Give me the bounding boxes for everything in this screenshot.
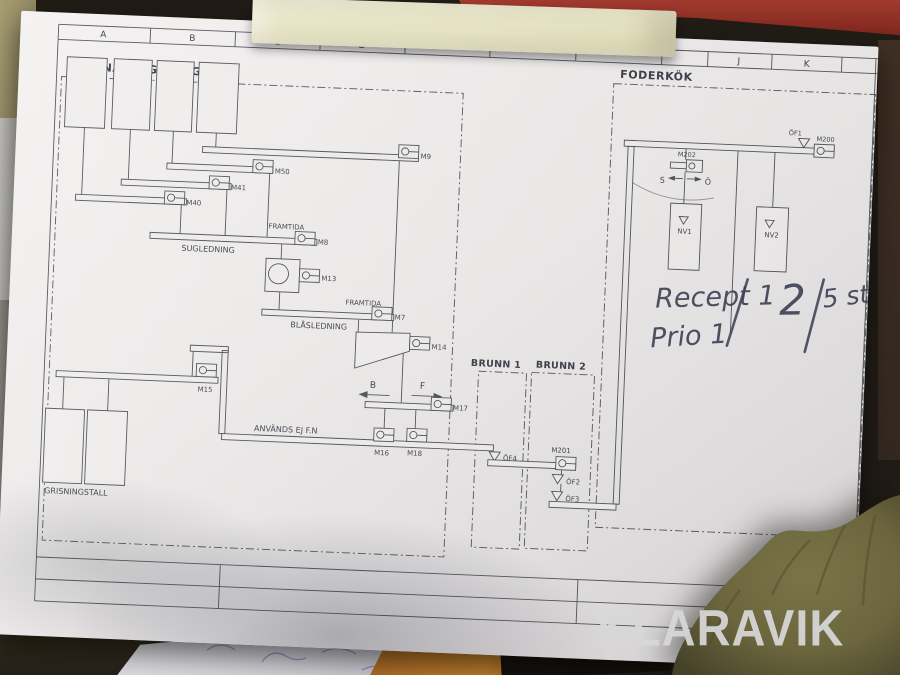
reversible-conveyor: B F M17: [358, 379, 469, 413]
hopper-m14: M14: [355, 331, 448, 372]
label-nv2: NV2: [764, 231, 779, 240]
background-edge: [878, 40, 900, 460]
label-grisningstall: GRISNINGSTALL: [44, 486, 108, 498]
silo-1: [64, 57, 107, 129]
valve-of1-icon: [798, 138, 809, 147]
motor-m41-icon: [209, 176, 230, 190]
grid-letter: K: [804, 60, 811, 70]
section-title-foderkok: FODERKÖK: [620, 67, 693, 84]
motor-m200-icon: [814, 144, 835, 158]
label-f: F: [420, 382, 426, 392]
motor-m17-icon: [431, 397, 452, 411]
label-m8: M8: [318, 238, 329, 246]
grisningstall-feed: M15 GRISNINGSTALL: [42, 357, 219, 502]
label-nv1: NV1: [677, 227, 692, 236]
grisningstall-pen-2: [85, 410, 128, 486]
conveyor-m40: M40: [75, 187, 201, 207]
silo-2: [111, 59, 152, 131]
handwriting-count: 2: [779, 275, 806, 324]
motor-m8-icon: [295, 231, 316, 245]
motor-m9-icon: [398, 145, 419, 159]
sugledning-line: FRAMTIDA M8 SUGLEDNING: [149, 217, 329, 258]
klaravik-watermark: KLARAVIK: [597, 598, 897, 657]
motor-m14-icon: [409, 336, 430, 350]
motor-m40-icon: [164, 191, 185, 205]
label-m41: M41: [231, 184, 246, 193]
conveyor-m41: M41: [121, 172, 246, 192]
curve-line: [632, 183, 715, 202]
handwritten-notes: Recept 1 Prio 1 2 5 st: [648, 269, 873, 364]
photo-scene: A B C D J K KVARNANLÄGGNING FODERKÖK: [0, 0, 900, 675]
grid-letter: J: [736, 57, 740, 67]
nv1-box: [668, 203, 702, 270]
handwriting-recept: Recept 1: [655, 280, 776, 314]
grid-letter: A: [100, 30, 107, 40]
arrow-left-icon: [358, 391, 367, 398]
label-m13: M13: [321, 275, 336, 284]
label-m40: M40: [186, 199, 201, 208]
label-of1: ÖF1: [789, 128, 802, 138]
label-m7: M7: [395, 314, 406, 322]
label-blasledning: BLÅSLEDNING: [290, 318, 347, 331]
arrow-right-icon: [695, 177, 702, 182]
grid-letter: B: [189, 34, 196, 44]
motor-m16-icon: [374, 428, 395, 442]
motor-m15-icon: [196, 363, 217, 377]
blower-m13: M13: [265, 258, 337, 294]
arrow-left-icon: [668, 175, 675, 180]
label-b: B: [370, 381, 377, 391]
section-title-brunn2: BRUNN 2: [536, 360, 587, 373]
label-o: Ö: [705, 177, 712, 187]
motor-m13-icon: [299, 269, 320, 283]
label-m9: M9: [420, 153, 431, 161]
conveyor-m50: M50: [167, 156, 290, 176]
conveyor-m9: M9: [203, 136, 432, 162]
label-m14: M14: [431, 343, 447, 352]
label-sugledning: SUGLEDNING: [181, 244, 235, 255]
label-m18: M18: [407, 449, 422, 458]
motor-m18-icon: [407, 428, 428, 442]
motor-m50-icon: [253, 160, 274, 174]
label-anvands: ANVÄNDS EJ F.N: [254, 423, 318, 436]
motor-m7-icon: [372, 307, 393, 321]
label-m16: M16: [374, 449, 390, 458]
blasledning-line: FRAMTIDA M7 BLÅSLEDNING: [261, 295, 406, 334]
label-m15: M15: [197, 385, 212, 394]
label-m17: M17: [453, 404, 468, 413]
nv-units: NV1 NV2: [668, 203, 789, 274]
silo-4: [196, 62, 239, 134]
label-framtida-m8: FRAMTIDA: [268, 222, 304, 232]
handwriting-qty: 5 st: [821, 279, 872, 313]
label-s: S: [660, 176, 665, 185]
handwriting-prio: Prio 1: [649, 319, 728, 355]
grisningstall-pen-1: [43, 408, 85, 484]
diverter-m202: M202 S Ö: [660, 150, 713, 187]
section-title-brunn1: BRUNN 1: [471, 358, 522, 371]
label-m200: M200: [816, 135, 834, 144]
silo-3: [154, 61, 194, 132]
label-m50: M50: [275, 168, 290, 177]
label-m202: M202: [678, 150, 696, 159]
